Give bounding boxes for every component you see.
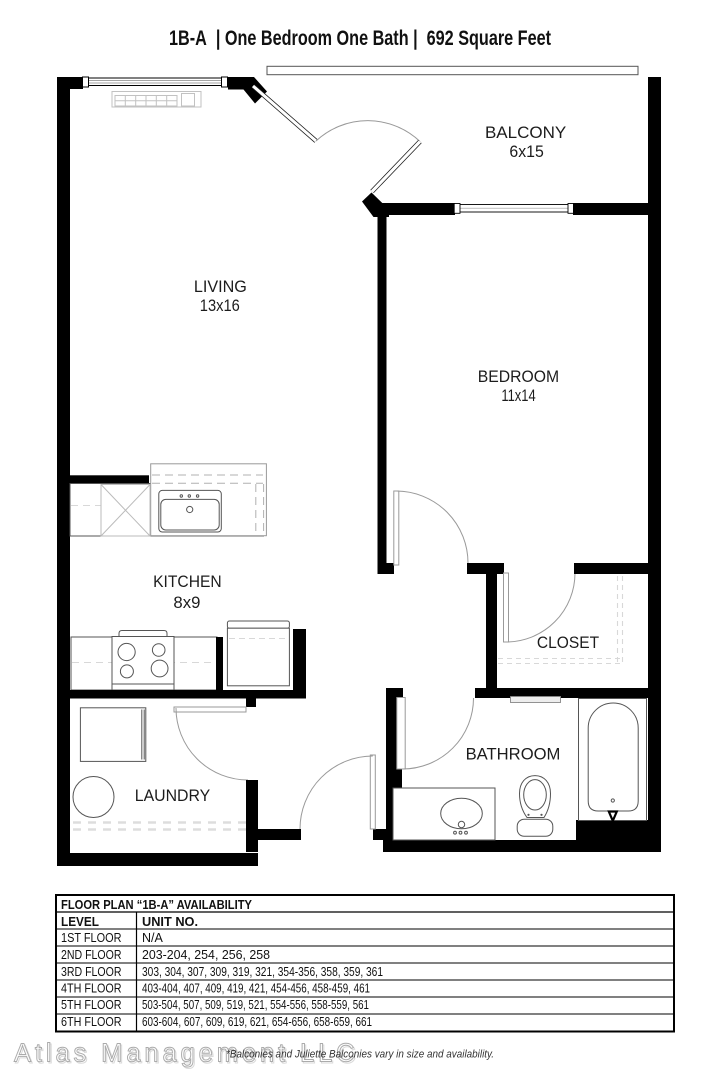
- svg-text:BALCONY: BALCONY: [485, 123, 566, 142]
- svg-text:N/A: N/A: [142, 931, 164, 945]
- svg-text:3RD FLOOR: 3RD FLOOR: [61, 965, 122, 979]
- svg-text:2ND FLOOR: 2ND FLOOR: [61, 948, 122, 962]
- svg-text:6TH FLOOR: 6TH FLOOR: [61, 1015, 122, 1029]
- svg-text:LAUNDRY: LAUNDRY: [135, 786, 211, 805]
- svg-text:4TH FLOOR: 4TH FLOOR: [61, 981, 122, 995]
- svg-text:UNIT NO.: UNIT NO.: [142, 915, 198, 929]
- svg-text:KITCHEN: KITCHEN: [153, 572, 222, 591]
- svg-text:*Balconies and Juliette Balcon: *Balconies and Juliette Balconies vary i…: [226, 1049, 494, 1061]
- svg-text:6x15: 6x15: [509, 142, 543, 161]
- svg-text:LIVING: LIVING: [194, 277, 247, 296]
- svg-text:8x9: 8x9: [173, 593, 200, 612]
- svg-text:1ST FLOOR: 1ST FLOOR: [61, 931, 122, 945]
- svg-text:BATHROOM: BATHROOM: [466, 745, 561, 764]
- svg-text:403-404, 407, 409, 419, 421, 4: 403-404, 407, 409, 419, 421, 454-456, 45…: [142, 981, 370, 995]
- svg-text:203-204, 254, 256, 258: 203-204, 254, 256, 258: [142, 948, 270, 962]
- svg-text:13x16: 13x16: [200, 296, 240, 315]
- svg-text:5TH FLOOR: 5TH FLOOR: [61, 998, 122, 1012]
- svg-text:503-504, 507, 509, 519, 521, 5: 503-504, 507, 509, 519, 521, 554-556, 55…: [142, 998, 369, 1012]
- svg-text:FLOOR PLAN “1B-A” AVAILABILITY: FLOOR PLAN “1B-A” AVAILABILITY: [61, 898, 253, 912]
- svg-text:603-604, 607, 609, 619, 621, 6: 603-604, 607, 609, 619, 621, 654-656, 65…: [142, 1015, 372, 1029]
- svg-text:LEVEL: LEVEL: [61, 915, 99, 929]
- svg-text:303, 304, 307, 309, 319, 321,: 303, 304, 307, 309, 319, 321, 354-356, 3…: [142, 965, 383, 979]
- svg-text:BEDROOM: BEDROOM: [478, 367, 559, 386]
- svg-text:11x14: 11x14: [501, 386, 535, 405]
- svg-text:1B-A | One Bedroom One Bath |: 1B-A | One Bedroom One Bath | 692 Square…: [169, 27, 551, 50]
- svg-text:CLOSET: CLOSET: [537, 633, 599, 652]
